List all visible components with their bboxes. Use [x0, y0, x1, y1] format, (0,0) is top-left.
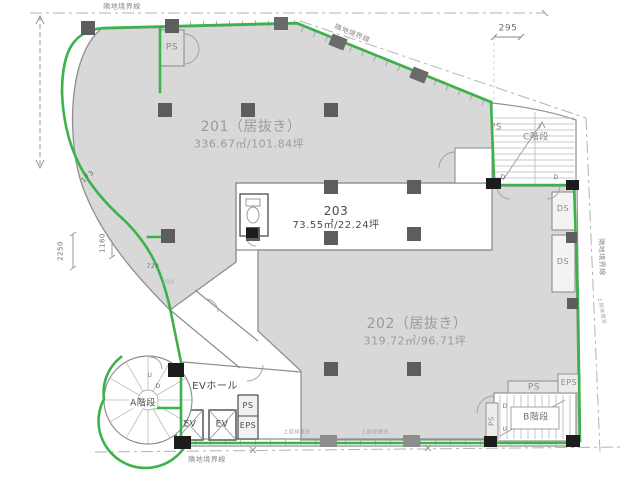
ps-b-label: PS [528, 384, 540, 393]
c-stairs-down-marker-2: D [553, 175, 558, 181]
a-stairs-up-marker: U [148, 373, 153, 379]
floor-plan: 隣地境界線 隣地境界線 隣地境界線 隣地境界線 295 173 2250 116… [0, 0, 626, 486]
b-stairs-label: B階段 [523, 414, 549, 423]
c-stairs-label: C階段 [523, 134, 549, 143]
b-stairs-up-marker: U [503, 427, 508, 433]
room-201-area: 336.67㎡/101.84坪 [194, 139, 304, 150]
dim-295: 295 [499, 25, 518, 34]
ps-top-label: PS [166, 44, 178, 53]
dim-1160: 1160 [100, 233, 107, 253]
c-stairs-down-marker-1: D [500, 175, 505, 181]
ps-b-vertical-label: PS [489, 416, 496, 426]
ds-2-label: DS [557, 258, 569, 266]
b-stairs-down-marker: D [502, 404, 507, 410]
boundary-label-bottom: 隣地境界線 [188, 457, 226, 464]
dim-728: 728 [147, 264, 160, 270]
toilet-tank [246, 199, 260, 206]
ev-hall-label: EVホール [192, 382, 238, 392]
room-203-name: 203 [324, 205, 348, 217]
ps-ev-label: PS [243, 402, 254, 410]
vent-note-2: 上部排煙窓 [361, 431, 389, 436]
boundary-label-top: 隣地境界線 [103, 4, 141, 11]
room-202-area: 319.72㎡/96.71坪 [364, 336, 467, 347]
eps-ev-label: EPS [240, 422, 256, 430]
toilet-bowl [247, 207, 259, 223]
ps-c-label: PS [490, 124, 502, 133]
ev-2-label: EV [216, 421, 229, 430]
ds-1-label: DS [557, 205, 569, 213]
ev-1-label: EV [184, 421, 197, 430]
eps-b-label: EPS [561, 379, 577, 387]
c-vestibule [455, 148, 492, 183]
dim-700: 700 [162, 280, 175, 286]
a-stairs-label: A階段 [129, 400, 157, 409]
room-201-name: 201（居抜き） [201, 120, 302, 134]
room-202-name: 202（居抜き） [367, 317, 468, 331]
vent-note-1: 上部排煙窓 [283, 431, 311, 436]
a-stairs-down-marker: D [155, 384, 160, 390]
room-203-area: 73.55㎡/22.24坪 [292, 221, 379, 231]
boundary-label-right: 隣地境界線 [597, 238, 605, 276]
dim-2250: 2250 [58, 241, 65, 261]
